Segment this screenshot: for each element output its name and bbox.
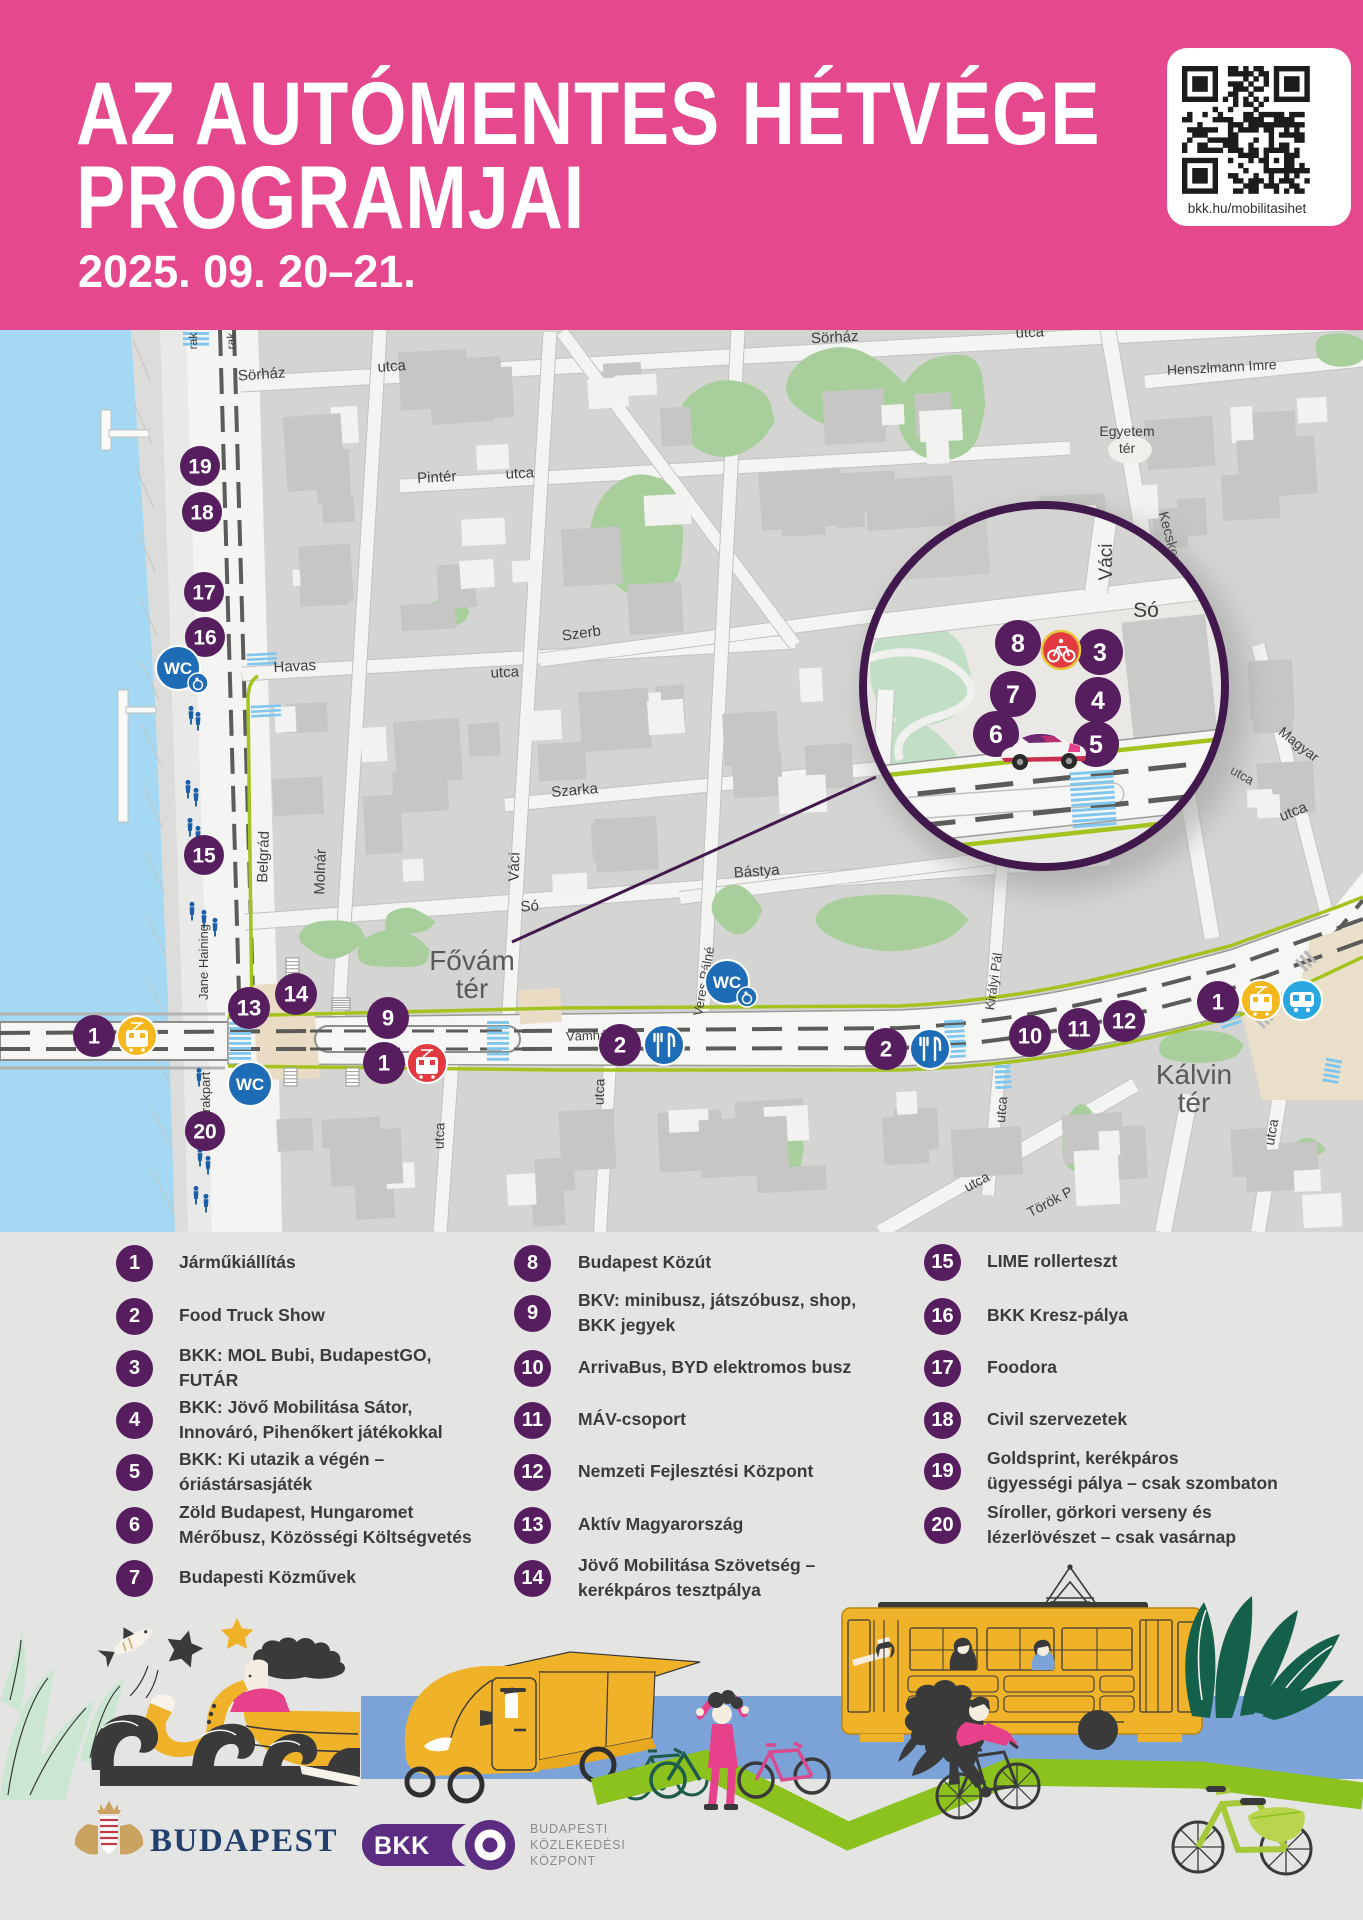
svg-text:5: 5	[1089, 731, 1103, 759]
svg-text:Egyetem: Egyetem	[1099, 423, 1154, 439]
svg-text:Havas: Havas	[273, 657, 316, 676]
svg-text:3: 3	[1093, 639, 1107, 667]
svg-text:6: 6	[989, 721, 1003, 749]
svg-text:Só: Só	[520, 897, 540, 915]
svg-text:Váci: Váci	[1096, 544, 1117, 581]
svg-text:7: 7	[1006, 681, 1020, 709]
svg-text:11: 11	[1067, 1017, 1090, 1042]
svg-text:utca: utca	[377, 357, 407, 376]
svg-text:14: 14	[284, 982, 309, 1007]
svg-text:utca: utca	[431, 1122, 448, 1149]
svg-text:WC: WC	[236, 1075, 264, 1094]
svg-text:1: 1	[378, 1051, 390, 1076]
svg-text:10: 10	[1018, 1024, 1042, 1049]
svg-text:BKK: BKK	[374, 1832, 430, 1860]
svg-text:Molnár: Molnár	[311, 849, 330, 895]
svg-text:utca: utca	[591, 1078, 608, 1105]
svg-text:13: 13	[237, 996, 261, 1021]
svg-text:Pintér: Pintér	[417, 468, 457, 487]
svg-text:15: 15	[192, 844, 216, 867]
svg-text:rak: rak	[186, 332, 200, 350]
svg-text:WC: WC	[164, 659, 192, 678]
svg-text:Sörház: Sörház	[811, 328, 859, 347]
svg-text:17: 17	[192, 581, 215, 604]
svg-text:rakpart: rakpart	[198, 1071, 213, 1112]
svg-text:Só: Só	[1133, 599, 1159, 622]
svg-text:12: 12	[1112, 1009, 1136, 1034]
svg-text:BUDAPEST: BUDAPEST	[150, 1823, 338, 1859]
svg-text:19: 19	[188, 455, 211, 478]
svg-text:Sörház: Sörház	[237, 364, 286, 384]
svg-text:18: 18	[190, 501, 214, 524]
svg-text:utca: utca	[1015, 323, 1045, 341]
svg-text:WC: WC	[713, 973, 741, 992]
svg-text:8: 8	[1011, 630, 1025, 658]
svg-text:20: 20	[193, 1120, 216, 1143]
svg-text:rak: rak	[224, 332, 238, 350]
svg-text:1: 1	[1212, 990, 1224, 1015]
svg-text:16: 16	[193, 626, 216, 649]
svg-text:Bástya: Bástya	[733, 861, 781, 881]
svg-text:tér: tér	[1178, 1087, 1211, 1118]
svg-text:utca: utca	[505, 464, 535, 482]
svg-text:tér: tér	[456, 973, 489, 1004]
svg-text:2: 2	[880, 1037, 892, 1062]
svg-text:Belgrád: Belgrád	[254, 831, 273, 883]
svg-text:1: 1	[88, 1024, 100, 1049]
svg-text:Jane Haining: Jane Haining	[196, 924, 211, 1000]
svg-text:9: 9	[382, 1006, 394, 1031]
svg-text:2: 2	[614, 1033, 626, 1058]
svg-text:BUDAPESTI: BUDAPESTI	[530, 1822, 608, 1836]
svg-text:4: 4	[1091, 687, 1105, 715]
svg-text:KÖZPONT: KÖZPONT	[530, 1854, 596, 1868]
svg-text:utca: utca	[490, 663, 520, 681]
svg-text:Kálvin: Kálvin	[1156, 1059, 1232, 1090]
svg-text:tér: tér	[1119, 440, 1136, 456]
svg-text:KÖZLEKEDÉSI: KÖZLEKEDÉSI	[530, 1837, 626, 1852]
svg-text:utca: utca	[992, 1095, 1010, 1123]
svg-text:Váci: Váci	[505, 852, 523, 882]
svg-text:Fővám: Fővám	[429, 945, 515, 976]
